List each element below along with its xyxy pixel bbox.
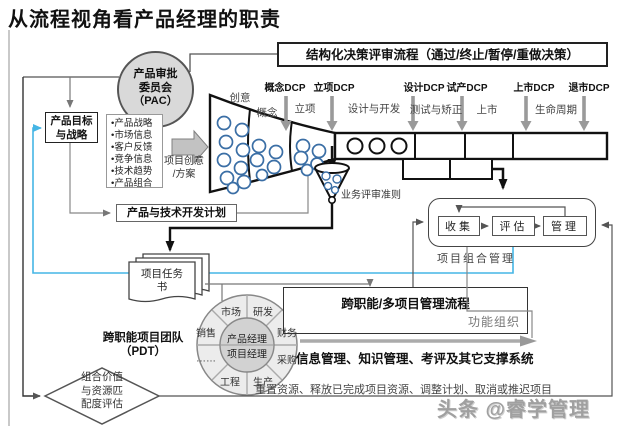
phase-lifecycle: 生命周期 (535, 102, 577, 117)
portfolio-step-collect: 收集 (438, 216, 480, 236)
pdt-center-product-manager: 产品经理 (227, 331, 267, 346)
pdt-seg-rd: 研发 (253, 304, 273, 319)
cone-tip (329, 197, 335, 203)
phase-launch: 上市 (477, 102, 498, 117)
pac-line1: 产品审批 (119, 68, 192, 82)
crossfunc-process-box: 跨职能/多项目管理流程 功能组织 (283, 287, 528, 334)
phase-concept: 概念 (257, 105, 278, 120)
pdt-seg-production: 生产 (253, 374, 273, 389)
pdt-seg-procurement: 采购 (277, 352, 297, 367)
task-doc-label: 项目任务 书 (133, 268, 191, 294)
subphase-row (403, 159, 492, 179)
dcp-label-concept: 概念DCP (264, 79, 305, 94)
dcp-label-charter: 立项DCP (313, 79, 354, 94)
phase-design: 设计与开发 (348, 101, 401, 116)
slide-canvas: 从流程视角看产品经理的职责 结构化决策评审流程（通过/终止/暂停/重做决策） 产… (0, 0, 640, 426)
strategy-line1: 产品目标 (46, 115, 97, 129)
dcp-label-pilot: 试产DCP (446, 79, 487, 94)
review-criteria-label: 业务评审准则 (341, 186, 401, 201)
portfolio-step-manage: 管理 (543, 216, 587, 236)
left-rail-to-diamond (23, 77, 40, 396)
pdt-center-project-manager: 项目经理 (227, 346, 267, 361)
portfolio-label: 项目组合管理 (437, 250, 515, 266)
pipeline-project-circles (348, 139, 407, 154)
support-systems-text: 信息管理、知识管理、考评及其它支撑系统 (296, 348, 534, 367)
pac-line3: （PAC） (119, 95, 192, 109)
crossfunc-title: 跨职能/多项目管理流程 (284, 293, 527, 312)
input-item: •产品组合 (111, 178, 162, 190)
pipeline-to-portfolio-arrow (492, 169, 503, 188)
strategy-line2: 与战略 (46, 129, 97, 143)
page-title: 从流程视角看产品经理的职责 (8, 3, 281, 32)
portfolio-step-evaluate: 评估 (492, 216, 535, 236)
pac-banner-connector (190, 54, 277, 72)
taskdoc-to-crossfunc-arrow (205, 284, 370, 286)
pdt-seg-sales: 销售 (196, 325, 216, 340)
phase-test: 测试与矫正 (410, 102, 463, 117)
support-arrow (300, 336, 537, 347)
strategy-to-plan-arrow (70, 143, 110, 213)
watermark: 头条 @睿学管理 (437, 393, 590, 422)
functional-org-label: 功能组织 (468, 313, 520, 330)
input-item: •技术趋势 (111, 166, 162, 178)
pdt-seg-engineering: 工程 (220, 374, 240, 389)
pac-line2: 委员会 (119, 82, 192, 96)
input-item: •客户反馈 (111, 142, 162, 154)
product-goal-strategy-box: 产品目标 与战略 (45, 112, 98, 143)
product-tech-plan-box: 产品与技术开发计划 (116, 204, 237, 222)
dcp-label-retire: 退市DCP (568, 79, 609, 94)
input-item: •市场信息 (111, 130, 162, 142)
phase-charter: 立项 (295, 101, 316, 116)
pdt-team-label: 跨职能项目团队 （PDT） (83, 331, 203, 359)
idea-arrow-label: 项目创意 /方案 (164, 155, 204, 181)
phase-idea: 创意 (230, 90, 251, 105)
crossfunc-to-portfolio-arrow (413, 222, 423, 287)
dcp-label-design: 设计DCP (403, 79, 444, 94)
strategy-inputs-box: •产品战略 •市场信息 •客户反馈 •竞争信息 •技术趋势 •产品组合 (106, 114, 163, 188)
pdt-seg-etc: …… (196, 354, 216, 365)
dcp-label-launch: 上市DCP (513, 79, 554, 94)
input-item: •产品战略 (111, 118, 162, 130)
input-item: •竞争信息 (111, 154, 162, 166)
decision-review-banner: 结构化决策评审流程（通过/终止/暂停/重做决策） (277, 42, 608, 67)
pdt-seg-finance: 财务 (277, 325, 297, 340)
pdt-seg-market: 市场 (221, 304, 241, 319)
portfolio-value-diamond-label: 组合价值 与资源匹 配度评估 (70, 371, 134, 412)
